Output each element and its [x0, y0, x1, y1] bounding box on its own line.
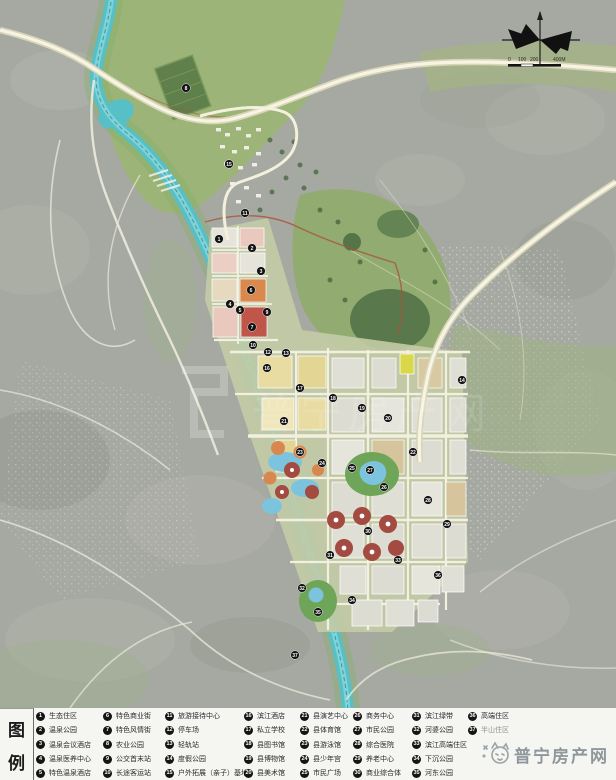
legend-item-18: 18县图书馆 [244, 738, 285, 752]
legend-item-10: 10长途客运站 [103, 766, 151, 780]
map-marker-11: 11 [241, 209, 250, 218]
legend-item-6: 6特色商业街 [103, 709, 151, 723]
legend-title-char: 例 [8, 749, 25, 774]
map-marker-10: 10 [249, 341, 258, 350]
legend-item-1: 1生态住区 [36, 709, 91, 723]
svg-text:6: 6 [250, 288, 253, 294]
legend-item-label: 综合医院 [366, 740, 394, 750]
map-marker-2: 2 [248, 244, 257, 253]
legend-item-36: 36高端住区 [468, 709, 509, 723]
scale-label: 200 [530, 57, 539, 63]
legend-item-2: 2温泉公园 [36, 723, 91, 737]
map-marker-21: 21 [280, 417, 289, 426]
legend-number-badge: 6 [103, 712, 112, 721]
legend-number-badge: 15 [165, 769, 174, 778]
legend-item-label: 特色商业街 [116, 711, 151, 721]
legend-item-label: 私立学校 [257, 725, 285, 735]
map-marker-16: 16 [263, 364, 272, 373]
svg-text:32: 32 [299, 586, 305, 592]
map-marker-37: 37 [291, 651, 300, 660]
cat-logo-icon [481, 740, 511, 768]
map-marker-24: 24 [318, 459, 327, 468]
legend-item-13: 13轻轨站 [165, 738, 248, 752]
legend-item-label: 户外拓展（亲子）基地 [178, 768, 248, 778]
legend-item-label: 度假公园 [178, 754, 206, 764]
map-marker-35: 35 [314, 608, 323, 617]
svg-text:28: 28 [425, 498, 431, 504]
legend-item-21: 21县演艺中心 [300, 709, 348, 723]
legend-item-24: 24县少年宫 [300, 752, 348, 766]
map-marker-9: 9 [263, 308, 272, 317]
legend-number-badge: 35 [412, 769, 421, 778]
legend-number-badge: 31 [412, 712, 421, 721]
legend-number-badge: 3 [36, 740, 45, 749]
svg-text:31: 31 [327, 553, 333, 559]
map-marker-17: 17 [296, 384, 305, 393]
svg-text:5: 5 [239, 308, 242, 314]
svg-text:13: 13 [283, 351, 289, 357]
legend-item-label: 县美术馆 [257, 768, 285, 778]
legend-item-label: 温泉医养中心 [49, 754, 91, 764]
legend-item-label: 县博物馆 [257, 754, 285, 764]
scale-label: 400M [553, 57, 566, 63]
legend-item-31: 31滨江绿带 [412, 709, 467, 723]
legend-number-badge: 2 [36, 726, 45, 735]
watermark-text: 普宁房产网 [514, 742, 609, 767]
site-watermark: 普宁房产网 [481, 740, 609, 768]
map-marker-25: 25 [348, 464, 357, 473]
map-marker-30: 30 [364, 527, 373, 536]
legend-number-badge: 22 [300, 726, 309, 735]
legend-number-badge: 10 [103, 769, 112, 778]
svg-text:30: 30 [365, 529, 371, 535]
map-marker-6: 6 [247, 286, 256, 295]
map-marker-29: 29 [443, 520, 452, 529]
legend-item-28: 28综合医院 [353, 738, 401, 752]
legend-item-9: 9公交首末站 [103, 752, 151, 766]
legend-item-label: 养老中心 [366, 754, 394, 764]
legend-number-badge: 4 [36, 755, 45, 764]
map-marker-34: 34 [348, 596, 357, 605]
legend-item-label: 县体育馆 [313, 725, 341, 735]
legend-item-26: 26商务中心 [353, 709, 401, 723]
map-marker-20: 20 [384, 414, 393, 423]
svg-text:22: 22 [410, 450, 416, 456]
legend-number-badge: 20 [244, 769, 253, 778]
legend-number-badge: 37 [468, 726, 477, 735]
svg-text:2: 2 [251, 246, 254, 252]
legend-item-4: 4温泉医养中心 [36, 752, 91, 766]
legend-number-badge: 34 [412, 755, 421, 764]
legend-item-label: 下沉公园 [425, 754, 453, 764]
map-marker-31: 31 [326, 551, 335, 560]
legend-number-badge: 26 [353, 712, 362, 721]
legend-item-label: 滨江高端住区 [425, 740, 467, 750]
legend-item-label: 特色温泉酒店 [49, 768, 91, 778]
legend-number-badge: 8 [103, 740, 112, 749]
svg-text:21: 21 [281, 419, 287, 425]
svg-text:9: 9 [266, 310, 269, 316]
legend-number-badge: 32 [412, 726, 421, 735]
legend-item-27: 27市民公园 [353, 723, 401, 737]
legend-item-7: 7特色风情街 [103, 723, 151, 737]
legend-item-11: 11旅游接待中心 [165, 709, 248, 723]
svg-text:4: 4 [229, 302, 232, 308]
svg-text:19: 19 [359, 406, 365, 412]
legend-number-badge: 5 [36, 769, 45, 778]
legend-number-badge: 28 [353, 740, 362, 749]
svg-text:23: 23 [297, 450, 303, 456]
legend-number-badge: 13 [165, 740, 174, 749]
svg-text:26: 26 [381, 485, 387, 491]
legend-item-37: 37半山住区 [468, 723, 509, 737]
legend-number-badge: 24 [300, 755, 309, 764]
legend-title-char: 图 [8, 716, 25, 741]
legend-number-badge: 16 [244, 712, 253, 721]
svg-text:36: 36 [435, 573, 441, 579]
legend-item-23: 23县游泳馆 [300, 738, 348, 752]
svg-text:25: 25 [349, 466, 355, 472]
legend-column-4: 16滨江酒店17私立学校18县图书馆19县博物馆20县美术馆 [244, 709, 285, 780]
legend-number-badge: 11 [165, 712, 174, 721]
svg-text:7: 7 [251, 325, 254, 331]
legend-number-badge: 9 [103, 755, 112, 764]
svg-text:17: 17 [297, 386, 303, 392]
legend-item-label: 温泉会议酒店 [49, 740, 91, 750]
map-marker-33: 33 [394, 556, 403, 565]
legend-item-34: 34下沉公园 [412, 752, 467, 766]
legend-column-8: 36高端住区37半山住区 [468, 709, 509, 738]
legend-item-32: 32河婆公园 [412, 723, 467, 737]
map-marker-8: 8 [182, 84, 191, 93]
legend-number-badge: 30 [353, 769, 362, 778]
legend-column-5: 21县演艺中心22县体育馆23县游泳馆24县少年宫25市民广场 [300, 709, 348, 780]
legend-number-badge: 12 [165, 726, 174, 735]
map-canvas: 普宁房产网 1234567891011121314151617181920212… [0, 0, 616, 708]
svg-text:1: 1 [218, 237, 221, 243]
legend-item-label: 商业综合体 [366, 768, 401, 778]
legend-item-label: 河东公园 [425, 768, 453, 778]
legend-number-badge: 18 [244, 740, 253, 749]
map-marker-36: 36 [434, 571, 443, 580]
legend-item-label: 市民公园 [366, 725, 394, 735]
map-marker-1: 1 [215, 235, 224, 244]
svg-text:18: 18 [330, 396, 336, 402]
legend-number-badge: 7 [103, 726, 112, 735]
planning-map-page: 普宁房产网 1234567891011121314151617181920212… [0, 0, 616, 780]
map-marker-14: 14 [458, 376, 467, 385]
legend-number-badge: 27 [353, 726, 362, 735]
legend-column-3: 11旅游接待中心12停车场13轻轨站14度假公园15户外拓展（亲子）基地 [165, 709, 248, 780]
legend-item-16: 16滨江酒店 [244, 709, 285, 723]
master-plan-map: 普宁房产网 1234567891011121314151617181920212… [0, 0, 616, 708]
legend-item-label: 农业公园 [116, 740, 144, 750]
legend-number-badge: 36 [468, 712, 477, 721]
legend-item-20: 20县美术馆 [244, 766, 285, 780]
map-marker-18: 18 [329, 394, 338, 403]
map-marker-13: 13 [282, 349, 291, 358]
map-marker-15: 15 [225, 160, 234, 169]
legend-item-14: 14度假公园 [165, 752, 248, 766]
legend-item-label: 滨江酒店 [257, 711, 285, 721]
legend-item-label: 停车场 [178, 725, 199, 735]
legend-item-label: 县游泳馆 [313, 740, 341, 750]
svg-text:普宁房产网: 普宁房产网 [252, 390, 492, 437]
legend-column-1: 1生态住区2温泉公园3温泉会议酒店4温泉医养中心5特色温泉酒店 [36, 709, 91, 780]
legend-item-22: 22县体育馆 [300, 723, 348, 737]
legend-item-33: 33滨江高端住区 [412, 738, 467, 752]
svg-text:14: 14 [459, 378, 465, 384]
legend-number-badge: 17 [244, 726, 253, 735]
map-marker-19: 19 [358, 404, 367, 413]
svg-text:16: 16 [264, 366, 270, 372]
legend-item-label: 市民广场 [313, 768, 341, 778]
legend-item-label: 县少年宫 [313, 754, 341, 764]
legend-number-badge: 33 [412, 740, 421, 749]
legend-item-label: 旅游接待中心 [178, 711, 220, 721]
map-marker-27: 27 [366, 466, 375, 475]
map-marker-22: 22 [409, 448, 418, 457]
map-marker-5: 5 [236, 306, 245, 315]
map-marker-7: 7 [248, 323, 257, 332]
legend-number-badge: 29 [353, 755, 362, 764]
legend-item-label: 长途客运站 [116, 768, 151, 778]
legend-number-badge: 21 [300, 712, 309, 721]
legend-item-label: 县演艺中心 [313, 711, 348, 721]
legend-item-label: 特色风情街 [116, 725, 151, 735]
svg-text:15: 15 [226, 162, 232, 168]
map-marker-26: 26 [380, 483, 389, 492]
svg-text:29: 29 [444, 522, 450, 528]
svg-text:33: 33 [395, 558, 401, 564]
legend-number-badge: 25 [300, 769, 309, 778]
legend-item-8: 8农业公园 [103, 738, 151, 752]
legend-item-label: 河婆公园 [425, 725, 453, 735]
legend-item-label: 商务中心 [366, 711, 394, 721]
legend-item-label: 滨江绿带 [425, 711, 453, 721]
svg-text:20: 20 [385, 416, 391, 422]
legend-item-label: 县图书馆 [257, 740, 285, 750]
legend-item-label: 高端住区 [481, 711, 509, 721]
svg-text:37: 37 [292, 653, 298, 659]
map-marker-4: 4 [226, 300, 235, 309]
svg-text:24: 24 [319, 461, 325, 467]
scale-label: 0 [508, 57, 511, 63]
legend-title: 图例 [0, 708, 34, 780]
svg-text:27: 27 [367, 468, 373, 474]
legend-item-label: 轻轨站 [178, 740, 199, 750]
map-marker-32: 32 [298, 584, 307, 593]
legend-column-7: 31滨江绿带32河婆公园33滨江高端住区34下沉公园35河东公园 [412, 709, 467, 780]
svg-text:8: 8 [185, 86, 188, 92]
legend-item-15: 15户外拓展（亲子）基地 [165, 766, 248, 780]
svg-text:11: 11 [242, 211, 248, 217]
legend-item-label: 生态住区 [49, 711, 77, 721]
legend-item-30: 30商业综合体 [353, 766, 401, 780]
map-marker-23: 23 [296, 448, 305, 457]
legend-item-12: 12停车场 [165, 723, 248, 737]
svg-text:10: 10 [250, 343, 256, 349]
svg-text:3: 3 [260, 269, 263, 275]
legend-item-29: 29养老中心 [353, 752, 401, 766]
svg-text:35: 35 [315, 610, 321, 616]
map-marker-28: 28 [424, 496, 433, 505]
legend-column-6: 26商务中心27市民公园28综合医院29养老中心30商业综合体 [353, 709, 401, 780]
legend-item-35: 35河东公园 [412, 766, 467, 780]
legend-item-label: 公交首末站 [116, 754, 151, 764]
legend-item-19: 19县博物馆 [244, 752, 285, 766]
legend-item-25: 25市民广场 [300, 766, 348, 780]
legend-item-3: 3温泉会议酒店 [36, 738, 91, 752]
legend-number-badge: 14 [165, 755, 174, 764]
svg-text:34: 34 [349, 598, 355, 604]
legend-number-badge: 1 [36, 712, 45, 721]
svg-text:12: 12 [265, 350, 271, 356]
legend-item-5: 5特色温泉酒店 [36, 766, 91, 780]
legend-item-label: 温泉公园 [49, 725, 77, 735]
scale-label: 100 [518, 57, 527, 63]
legend-column-2: 6特色商业街7特色风情街8农业公园9公交首末站10长途客运站 [103, 709, 151, 780]
legend-number-badge: 19 [244, 755, 253, 764]
map-marker-12: 12 [264, 348, 273, 357]
legend-item-17: 17私立学校 [244, 723, 285, 737]
legend-number-badge: 23 [300, 740, 309, 749]
legend-item-label: 半山住区 [481, 725, 509, 735]
map-marker-3: 3 [257, 267, 266, 276]
